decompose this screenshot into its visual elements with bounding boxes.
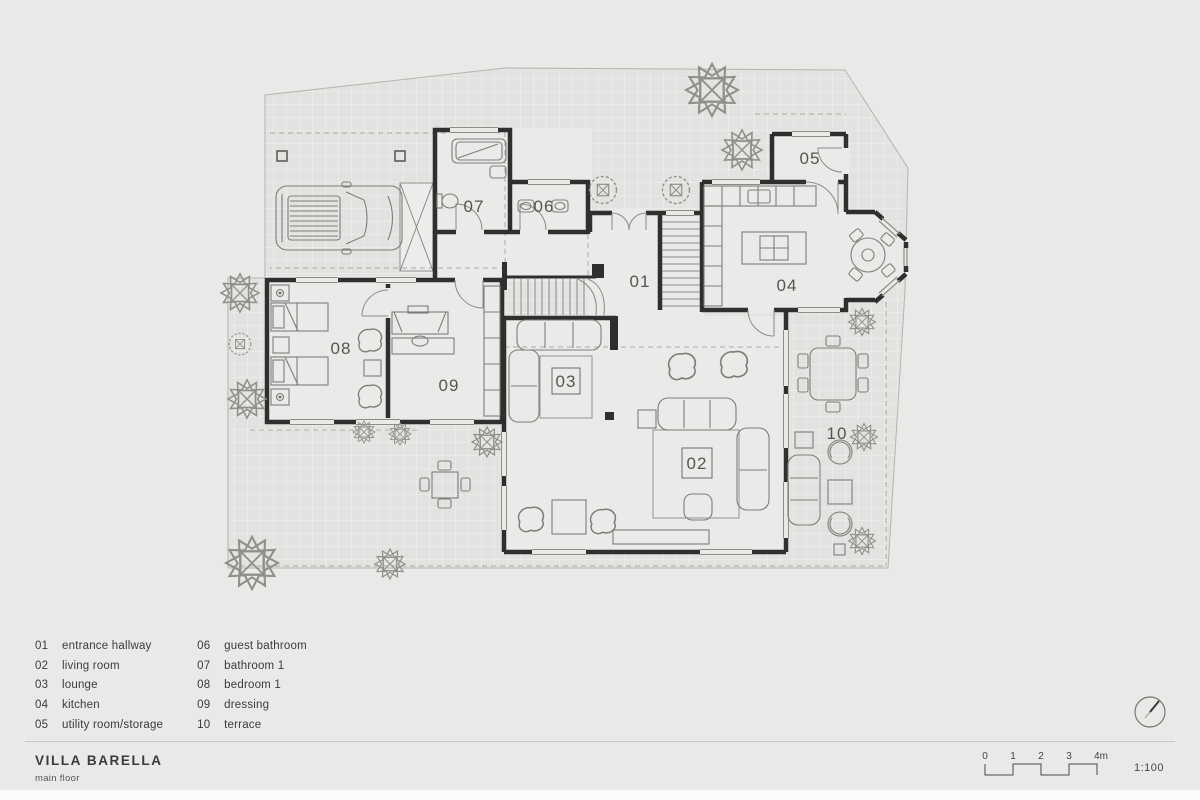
legend-number: 09 <box>197 699 224 711</box>
room-number-02: 02 <box>687 454 708 473</box>
title-block: VILLA BARELLA main floor <box>35 753 163 784</box>
scale-tick: 4m <box>1094 751 1108 762</box>
legend-label: dressing <box>224 699 269 711</box>
legend-number: 05 <box>35 719 62 731</box>
scale-tick: 2 <box>1038 751 1044 762</box>
legend-item: 05utility room/storage <box>35 715 163 735</box>
legend-label: terrace <box>224 719 261 731</box>
sheet-bottom-strip <box>0 790 1200 800</box>
scale-tick: 3 <box>1066 751 1072 762</box>
legend-number: 04 <box>35 699 62 711</box>
north-compass-icon <box>1128 690 1172 734</box>
legend-item: 09dressing <box>197 695 307 715</box>
room-number-06: 06 <box>534 197 555 216</box>
room-legend: 01entrance hallway 02living room 03loung… <box>35 636 307 734</box>
legend-label: kitchen <box>62 699 100 711</box>
legend-label: utility room/storage <box>62 719 163 731</box>
footer-divider <box>25 741 1175 742</box>
scale-tick: 0 <box>982 751 988 762</box>
floor-plan-drawing: 01 02 03 04 05 06 07 08 09 10 <box>0 0 1200 632</box>
legend-item: 06guest bathroom <box>197 636 307 656</box>
legend-item: 08bedroom 1 <box>197 675 307 695</box>
room-number-04: 04 <box>777 276 798 295</box>
room-number-08: 08 <box>331 339 352 358</box>
legend-number: 06 <box>197 640 224 652</box>
legend-label: bedroom 1 <box>224 679 281 691</box>
room-number-09: 09 <box>439 376 460 395</box>
scale-bar: 0 1 2 3 4m <box>975 748 1125 784</box>
legend-number: 03 <box>35 679 62 691</box>
legend-number: 01 <box>35 640 62 652</box>
legend-label: entrance hallway <box>62 640 152 652</box>
room-number-01: 01 <box>630 272 651 291</box>
legend-label: guest bathroom <box>224 640 307 652</box>
legend-label: living room <box>62 660 120 672</box>
floor-plan-sheet: { "project": { "title": "VILLA BARELLA",… <box>0 0 1200 800</box>
legend-number: 02 <box>35 660 62 672</box>
legend-item: 01entrance hallway <box>35 636 163 656</box>
scale-ratio: 1:100 <box>1134 762 1164 774</box>
room-number-10: 10 <box>827 424 848 443</box>
legend-item: 04kitchen <box>35 695 163 715</box>
legend-item: 02living room <box>35 656 163 676</box>
legend-item: 10terrace <box>197 715 307 735</box>
legend-label: lounge <box>62 679 98 691</box>
legend-number: 08 <box>197 679 224 691</box>
legend-column-2: 06guest bathroom 07bathroom 1 08bedroom … <box>197 636 307 734</box>
scale-tick: 1 <box>1010 751 1016 762</box>
legend-number: 10 <box>197 719 224 731</box>
room-number-03: 03 <box>556 372 577 391</box>
legend-item: 07bathroom 1 <box>197 656 307 676</box>
project-title: VILLA BARELLA <box>35 753 163 768</box>
legend-number: 07 <box>197 660 224 672</box>
room-number-07: 07 <box>464 197 485 216</box>
legend-label: bathroom 1 <box>224 660 284 672</box>
legend-item: 03lounge <box>35 675 163 695</box>
room-number-05: 05 <box>800 149 821 168</box>
floor-subtitle: main floor <box>35 773 163 784</box>
legend-column-1: 01entrance hallway 02living room 03loung… <box>35 636 163 734</box>
